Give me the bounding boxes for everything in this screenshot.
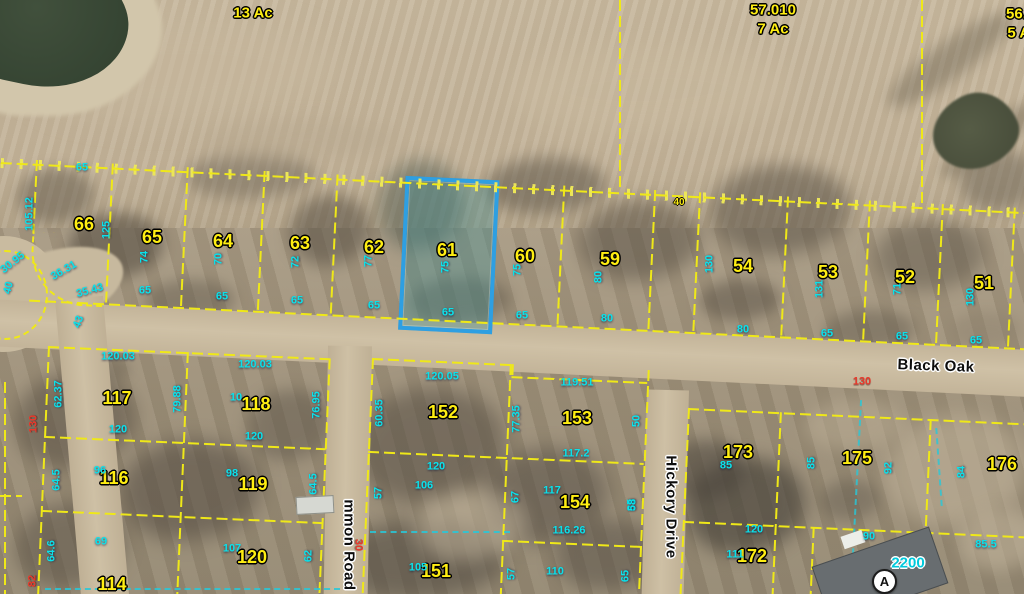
parcel-number: 120 [237,548,267,566]
parcel-number: 53 [818,263,838,281]
dimension-label: 64.5 [309,473,320,494]
dimension-label: 130 [705,255,716,273]
dimension-label: 92 [884,462,895,474]
dimension-label: 120 [245,432,263,443]
road-name: Black Oak [897,357,975,375]
dimension-label: 85.5 [975,540,996,551]
parcel-number: 154 [560,493,590,511]
dimension-label: 119.51 [560,378,593,389]
dimension-label: 62.37 [54,380,65,408]
dimension-label: 130 [966,288,977,306]
dimension-label: 111 [726,550,743,561]
dimension-label: 79.88 [173,385,184,413]
lot-boundary-line [780,196,789,336]
dimension-label: 10 [230,393,242,404]
dimension-label: 60.35 [375,399,386,427]
parcel-number: 63 [290,234,310,252]
dimension-label: 75 [441,261,452,273]
lot-boundary-line [771,412,782,594]
dimension-label: 106 [415,481,433,492]
easement-dashed-line [45,588,340,590]
dimension-label: 72 [291,256,302,268]
dimension-label: 65 [442,308,454,319]
lot-boundary-line [0,495,22,497]
parcel-number: 61 [437,241,457,259]
dimension-label: 65 [291,296,303,307]
dimension-label: 98 [226,469,238,480]
red-dimension-label: 130 [29,415,40,433]
parcel-number: 60 [515,247,535,265]
dimension-label: 90 [863,532,875,543]
small-building [296,495,335,515]
parcel-number: 117 [102,389,131,407]
dimension-label: 120.05 [425,372,459,383]
acreage-label: 5 Ac [1007,26,1024,41]
lot-boundary-line [921,0,923,205]
dimension-label: 57 [374,487,385,499]
dimension-label: 117.2 [563,449,590,460]
dimension-label: 120.03 [101,352,135,363]
dimension-label: 65 [216,292,228,303]
dimension-label: 116.26 [552,526,585,537]
parcel-number: 54 [733,257,753,275]
lot-boundary-line [4,382,6,594]
lot-boundary-line [862,200,871,340]
parcel-number: 176 [987,455,1017,473]
dimension-label: 65 [516,311,528,322]
lot-boundary-line [502,540,640,548]
parcel-number: 175 [842,449,872,467]
dimension-label: 65 [368,301,380,312]
parcel-number: 118 [241,395,270,413]
dimension-label: 65 [139,286,151,297]
dimension-label: 64.6 [47,540,58,561]
lot-boundary-line [619,0,621,188]
dimension-label: 131 [815,280,826,298]
acreage-label: 57.010 [750,3,796,18]
parcel-number: 65 [142,228,162,246]
dimension-label: 105.12 [25,197,36,231]
dimension-label: 75 [513,264,524,276]
dimension-label: 77 [364,255,375,267]
parcel-number: 119 [238,475,267,493]
dimension-label: 64.5 [52,469,63,490]
dimension-label: 85 [720,461,732,472]
dimension-label: 125 [102,221,113,239]
dimension-label: 57 [507,568,518,580]
lot-lines-center-block [362,358,648,594]
dimension-label: 120.03 [238,360,272,371]
dimension-label: 74 [140,251,151,263]
parcel-number: 153 [562,409,592,427]
dimension-label: 67 [511,491,522,503]
red-dimension-label: 130 [853,377,871,388]
lot-2200-label: 2200 [891,556,924,571]
lot-boundary-line [809,527,814,594]
lot-boundary-line [647,190,656,330]
lot-boundary-line [1007,208,1016,348]
dimension-label: 65 [821,329,833,340]
dimension-label: 77.35 [512,405,523,433]
dimension-label: 107 [223,544,241,555]
road-name: mmon Road [342,499,357,590]
red-dimension-label: 82 [28,575,39,587]
acreage-label: 7 Ac [757,22,788,37]
dimension-label: 69 [95,537,107,548]
parcel-number: 66 [74,215,94,233]
parcel-number: 152 [428,403,458,421]
lot-boundary-line [556,186,565,326]
dimension-label: 65 [76,163,88,174]
dimension-label: 58 [628,499,639,511]
dimension-label: 76.95 [312,391,323,419]
dimension-label: 80 [737,325,749,336]
parcel-number: 59 [600,250,620,268]
lot-boundary-line [692,192,701,332]
acreage-label: 56.030 [1006,7,1024,22]
lot-boundary-line [500,364,512,594]
lot-boundary-line [935,204,944,344]
dimension-label: 80 [601,314,613,325]
acreage-label: 13 Ac [233,6,272,21]
road-name: Hickory Drive [664,455,679,558]
parcel-number: 51 [974,274,994,292]
dimension-label: 120 [427,462,445,473]
map-marker-a[interactable]: A [872,569,897,594]
dimension-label: 80 [594,271,605,283]
lot-boundary-line [330,174,339,314]
dimension-label: 117 [543,486,561,497]
dimension-label: 62 [304,550,315,562]
parcel-number: 173 [723,443,753,461]
dimension-label: 65 [896,332,908,343]
lot-boundary-line [180,167,189,307]
dimension-label: 65 [970,336,982,347]
dimension-label: 120 [109,425,127,436]
lot-lines-southwest-block [37,346,330,594]
dimension-label: 96 [94,466,106,477]
dimension-label: 84 [957,466,968,478]
dimension-label: 85 [807,457,818,469]
easement-dashed-line [370,531,510,533]
parcel-number: 64 [213,232,233,250]
dimension-label: 120 [745,525,763,536]
map-canvas[interactable]: A 56.04013 Ac57.0107 Ac56.0305 Ac6665646… [0,0,1024,594]
lot-boundary-line [257,171,266,311]
small-yellow-label: 40 [673,198,684,208]
parcel-number: 114 [97,575,126,593]
dimension-label: 65 [621,570,632,582]
parcel-number: 62 [364,238,384,256]
dimension-label: 110 [546,567,564,578]
dimension-label: 105 [409,563,427,574]
dimension-label: 50 [632,415,643,427]
dimension-label: 71 [893,283,904,295]
dimension-label: 70 [214,253,225,265]
